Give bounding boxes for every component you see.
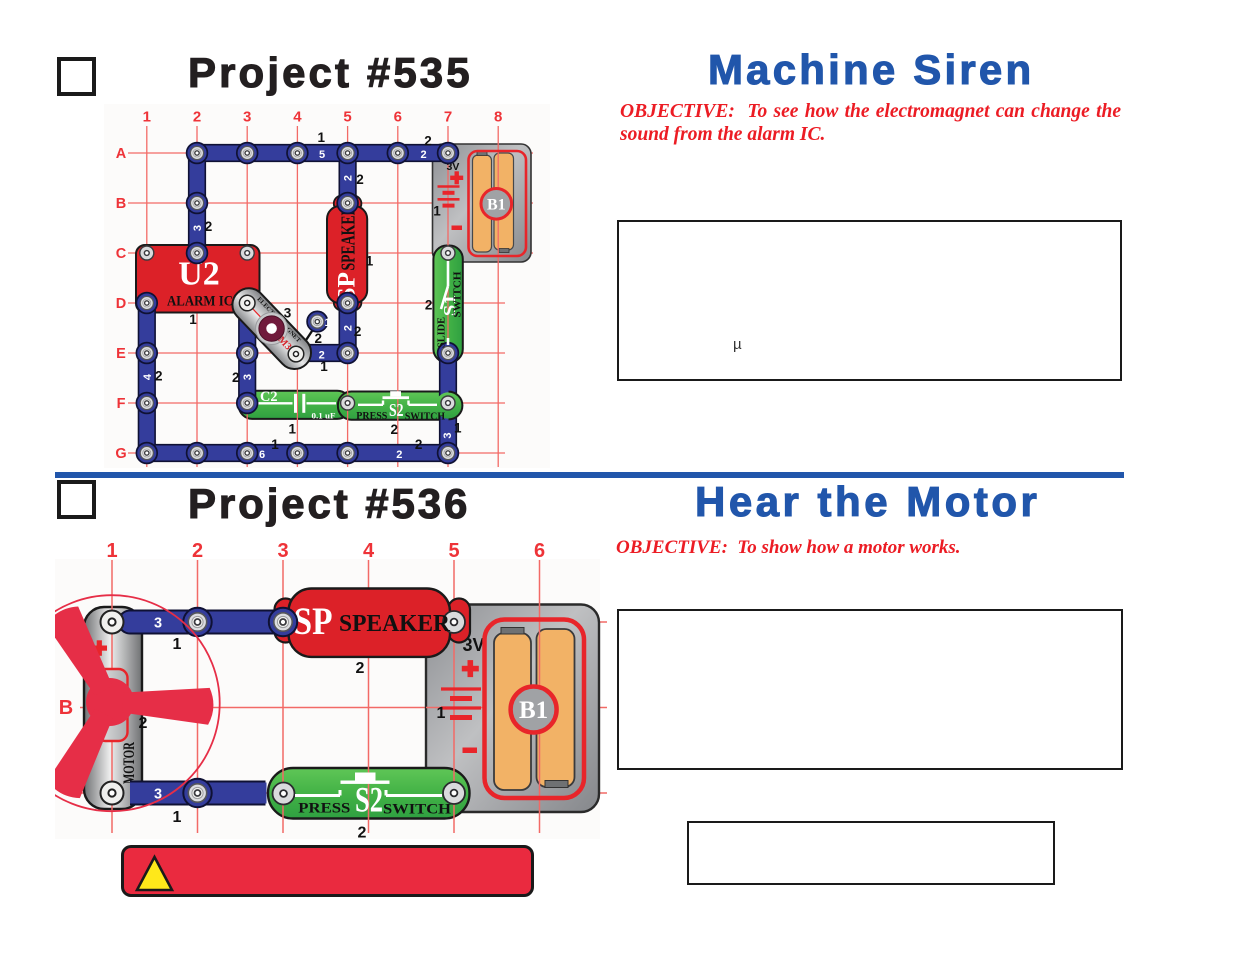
svg-text:8: 8 xyxy=(494,109,502,126)
svg-text:2: 2 xyxy=(425,298,433,313)
svg-text:2: 2 xyxy=(420,149,426,161)
svg-text:1: 1 xyxy=(320,359,328,374)
svg-text:2: 2 xyxy=(232,370,240,385)
svg-text:SWITCH: SWITCH xyxy=(452,271,464,317)
svg-text:MOTOR: MOTOR xyxy=(121,742,138,784)
svg-text:SLIDE: SLIDE xyxy=(437,317,448,348)
svg-text:D: D xyxy=(116,296,126,312)
svg-text:1: 1 xyxy=(173,636,182,653)
svg-text:1: 1 xyxy=(366,254,374,269)
svg-text:3: 3 xyxy=(442,432,454,438)
svg-text:2: 2 xyxy=(354,324,362,339)
svg-text:6: 6 xyxy=(259,449,265,461)
svg-text:S2: S2 xyxy=(389,400,404,420)
svg-text:1: 1 xyxy=(271,437,279,452)
svg-text:1: 1 xyxy=(143,109,151,126)
svg-text:2: 2 xyxy=(139,715,148,732)
svg-text:ALARM IC: ALARM IC xyxy=(167,294,233,310)
svg-text:6: 6 xyxy=(534,540,545,562)
svg-text:3: 3 xyxy=(284,306,292,321)
svg-text:2: 2 xyxy=(356,660,365,677)
svg-text:5: 5 xyxy=(319,149,325,161)
svg-text:2: 2 xyxy=(390,422,398,437)
svg-text:SWITCH: SWITCH xyxy=(405,411,445,422)
svg-text:B1: B1 xyxy=(487,197,506,214)
svg-text:2: 2 xyxy=(193,109,201,126)
svg-text:6: 6 xyxy=(394,109,402,126)
svg-text:1: 1 xyxy=(288,422,296,437)
svg-text:2: 2 xyxy=(205,219,213,234)
svg-text:SWITCH: SWITCH xyxy=(383,802,451,818)
svg-text:2: 2 xyxy=(343,175,355,181)
svg-text:B: B xyxy=(116,196,126,212)
svg-text:0.1 uF: 0.1 uF xyxy=(312,411,336,421)
svg-text:5: 5 xyxy=(448,540,459,562)
svg-text:2: 2 xyxy=(396,449,402,461)
svg-text:F: F xyxy=(117,396,126,412)
svg-text:2: 2 xyxy=(358,825,367,842)
svg-text:4: 4 xyxy=(363,540,375,562)
svg-text:G: G xyxy=(115,446,126,462)
svg-text:1: 1 xyxy=(324,317,330,329)
svg-text:3: 3 xyxy=(243,109,251,126)
svg-text:3: 3 xyxy=(277,540,288,562)
svg-text:PRESS: PRESS xyxy=(356,411,387,422)
svg-text:1: 1 xyxy=(454,421,462,436)
svg-text:1: 1 xyxy=(317,130,325,145)
svg-text:3: 3 xyxy=(154,616,162,632)
svg-text:PRESS: PRESS xyxy=(298,801,350,817)
svg-text:3: 3 xyxy=(154,787,162,803)
svg-text:S2: S2 xyxy=(355,780,383,820)
svg-text:B1: B1 xyxy=(519,697,548,724)
svg-text:SPEAKER: SPEAKER xyxy=(339,610,450,637)
svg-text:1: 1 xyxy=(189,312,197,327)
svg-text:3: 3 xyxy=(242,374,254,380)
svg-text:2: 2 xyxy=(356,172,364,187)
svg-text:2: 2 xyxy=(343,325,355,331)
svg-text:2: 2 xyxy=(424,134,432,149)
svg-text:1: 1 xyxy=(437,705,446,722)
svg-text:A: A xyxy=(116,146,127,162)
svg-text:4: 4 xyxy=(293,109,302,126)
svg-text:3: 3 xyxy=(192,225,204,231)
svg-text:5: 5 xyxy=(343,109,351,126)
svg-text:SPEAKER: SPEAKER xyxy=(338,205,360,270)
svg-text:C: C xyxy=(116,246,127,262)
svg-text:2: 2 xyxy=(155,369,163,384)
svg-text:2: 2 xyxy=(192,540,203,562)
svg-text:4: 4 xyxy=(142,373,154,380)
svg-text:2: 2 xyxy=(415,437,423,452)
svg-text:1: 1 xyxy=(173,809,182,826)
svg-text:1: 1 xyxy=(106,540,117,562)
svg-text:SP: SP xyxy=(294,600,333,643)
svg-text:B: B xyxy=(59,697,73,719)
svg-text:2: 2 xyxy=(315,331,323,346)
svg-text:E: E xyxy=(116,346,126,362)
svg-text:7: 7 xyxy=(444,109,452,126)
svg-text:1: 1 xyxy=(433,204,441,219)
